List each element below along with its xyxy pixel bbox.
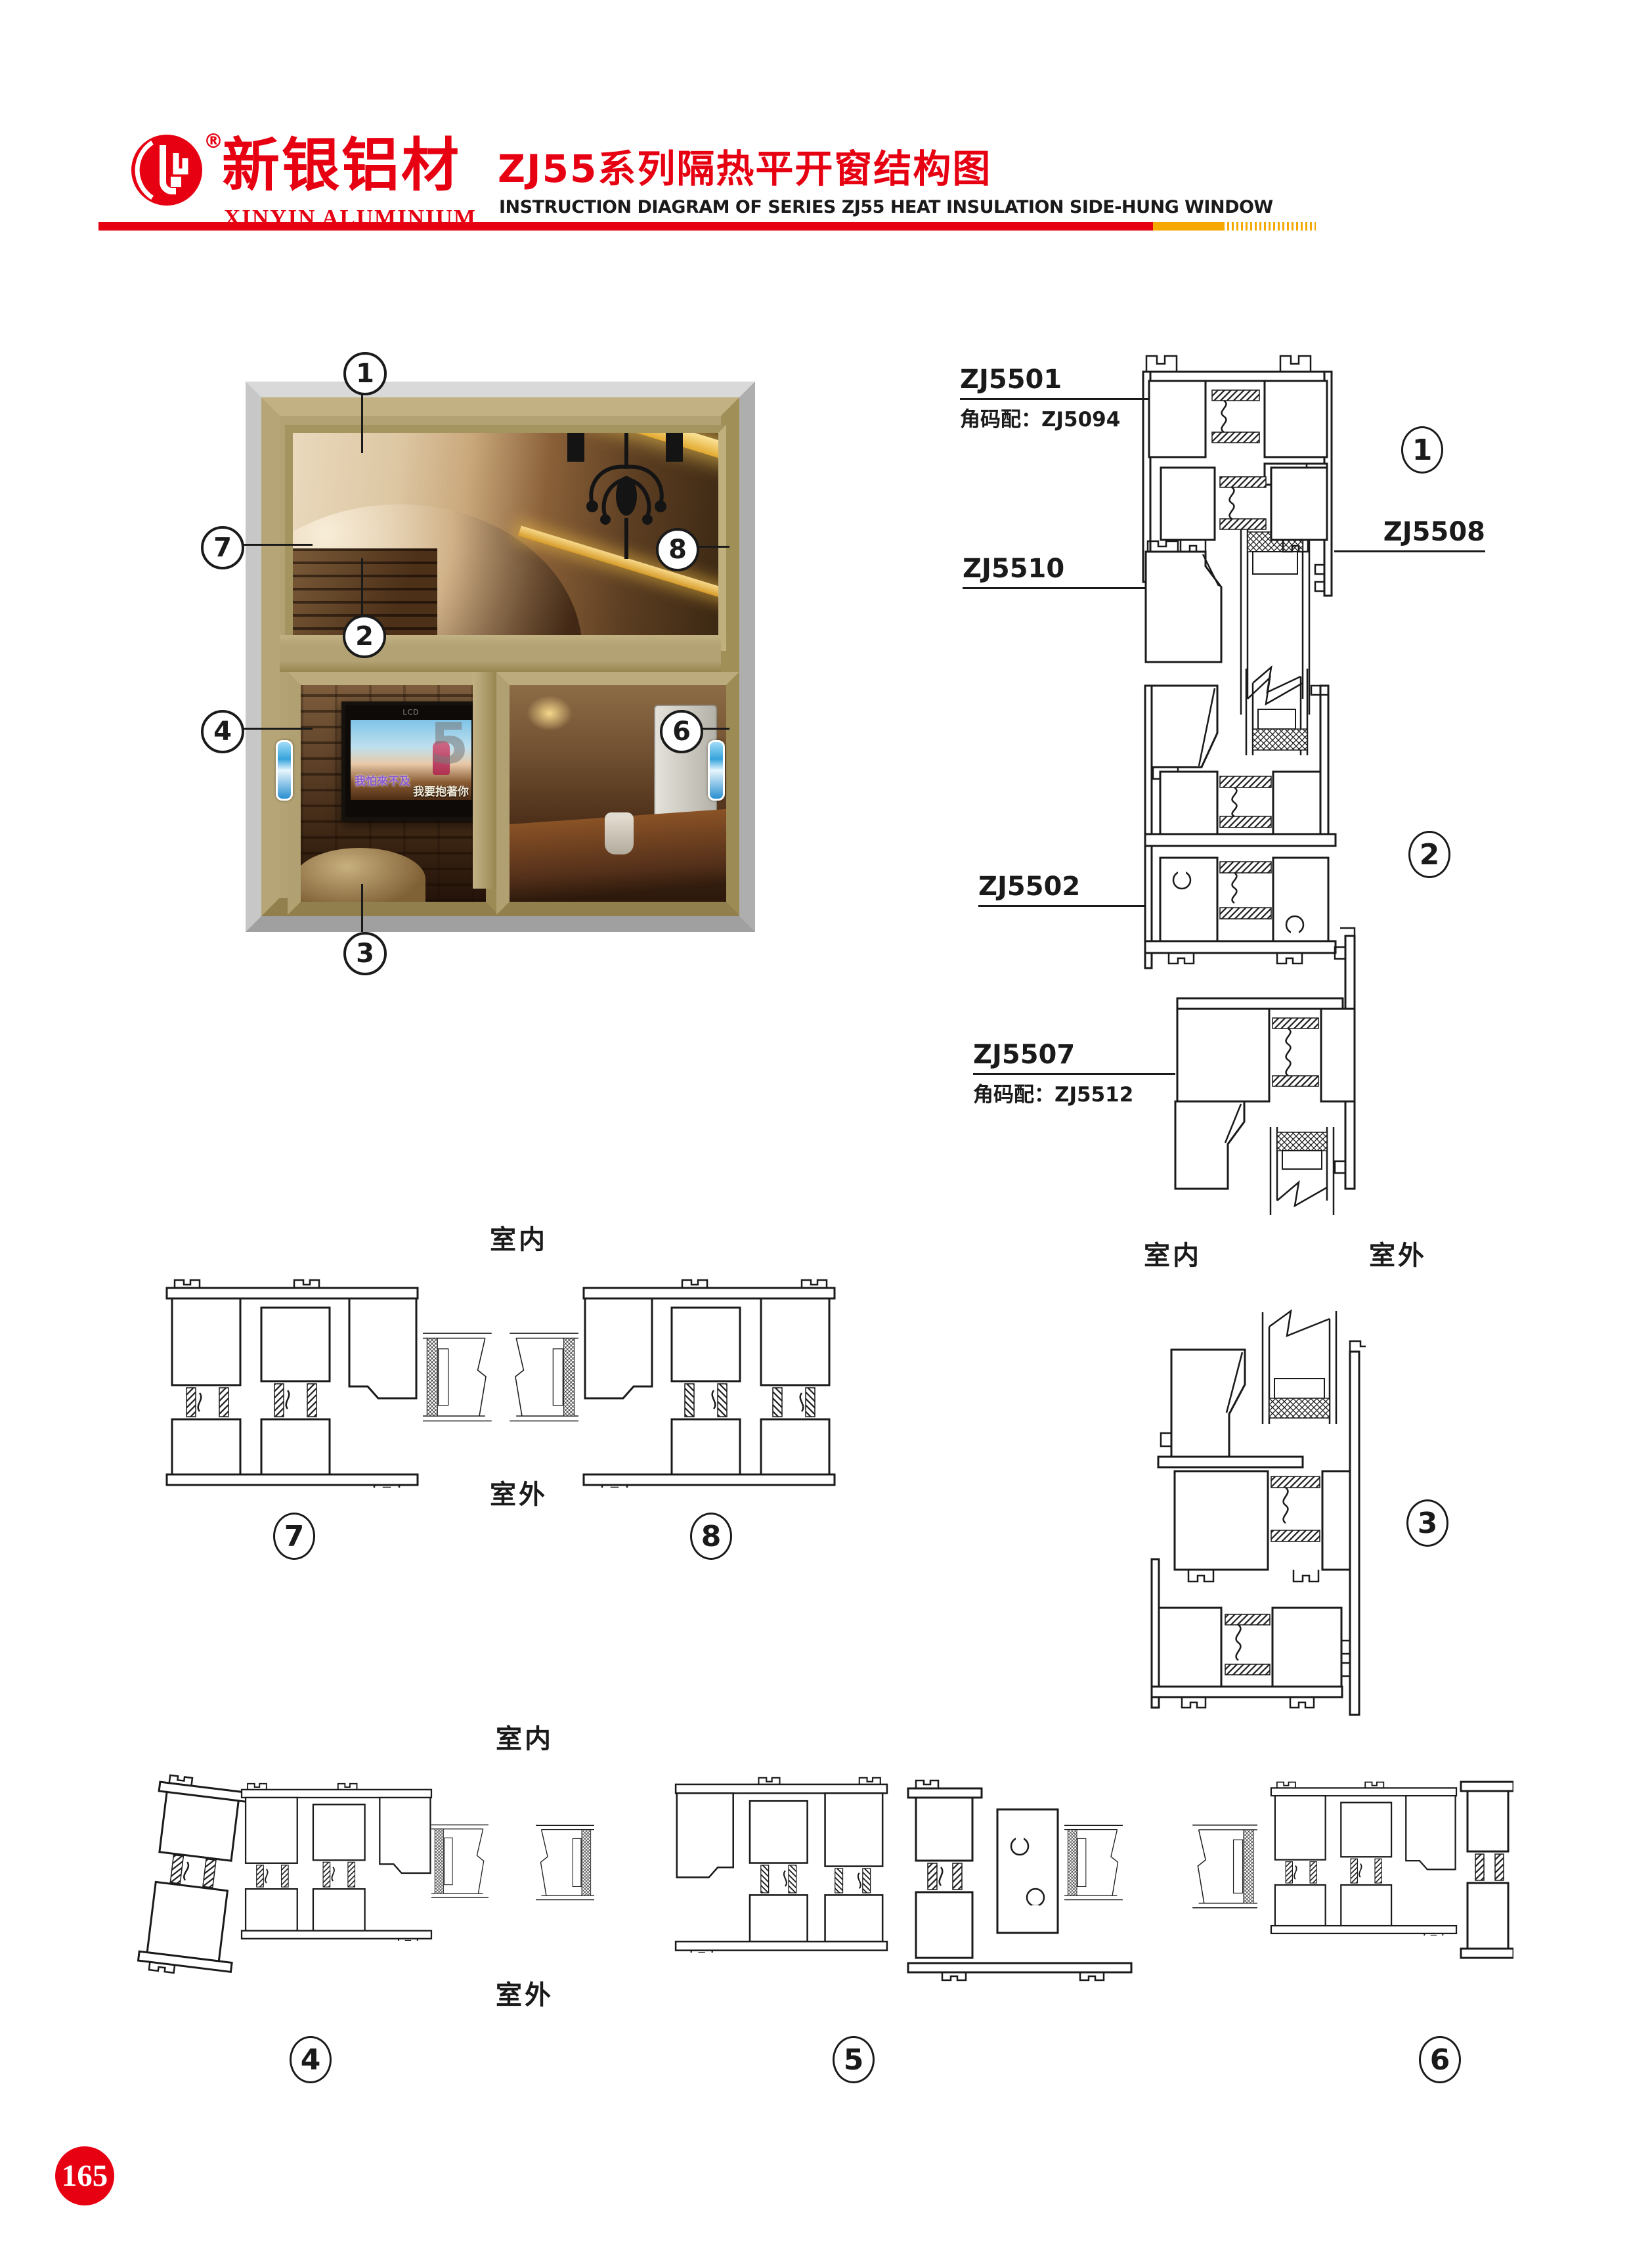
wall-sconce-glow (527, 696, 573, 731)
section-5-drawing (522, 1770, 1136, 1987)
catalog-page: ® 新银铝材 XINYIN ALUMINIUM ZJ55系列隔热平开窗结构图 I… (0, 0, 1652, 2258)
leader-line-8 (694, 546, 729, 548)
scene-living-room: LCD 我怕來不及 我要抱著你 5 (301, 685, 486, 902)
label-zj5502: ZJ5502 (978, 874, 1145, 907)
label-indoor-bottom: 室内 (496, 1726, 554, 1752)
center-mullion (473, 672, 496, 889)
tv-caption-2: 我要抱著你 (413, 782, 469, 799)
label-zj5508: ZJ5508 (1334, 519, 1485, 552)
label-zj5501-corner: 角码配：ZJ5094 (960, 410, 1120, 430)
left-sash: LCD 我怕來不及 我要抱著你 5 (288, 672, 499, 915)
leader-line-3 (361, 884, 363, 932)
section-7-number: 7 (273, 1513, 315, 1560)
logo-text-cn: 新银铝材 (222, 137, 461, 194)
vase (605, 812, 634, 854)
tv-caption-1: 我怕來不及 (355, 772, 410, 788)
window-handle-left (276, 740, 293, 801)
callout-1: 1 (343, 352, 387, 395)
window-aluminium-frame: LCD 我怕來不及 我要抱著你 5 (261, 397, 739, 916)
page-number-badge: 165 (55, 2146, 114, 2205)
leader-line-7 (239, 544, 313, 546)
callout-4: 4 (201, 710, 244, 753)
label-outdoor-right: 室外 (1369, 1243, 1427, 1269)
callout-8: 8 (656, 528, 699, 571)
right-sash (496, 672, 739, 915)
label-zj5501: ZJ5501 (960, 366, 1149, 400)
page-subtitle: INSTRUCTION DIAGRAM OF SERIES ZJ55 HEAT … (499, 198, 1273, 216)
header-rule-red (98, 222, 1153, 231)
label-outdoor-bottom: 室外 (496, 1982, 554, 2008)
label-zj5507-corner: 角码配：ZJ5512 (973, 1085, 1133, 1105)
section-2-number: 2 (1408, 831, 1450, 878)
section-6-number: 6 (1419, 2036, 1461, 2083)
callout-6: 6 (660, 710, 703, 753)
section-5-number: 5 (833, 2036, 875, 2083)
section-2-drawing (1142, 663, 1366, 1218)
registered-mark: ® (204, 130, 223, 153)
callout-7: 7 (201, 526, 244, 569)
header-rule-yellow (1153, 222, 1223, 231)
leader-line-1 (361, 391, 363, 453)
tv-brand: LCD (402, 708, 419, 717)
xinyin-logo-icon (130, 133, 204, 207)
callout-5-watermark: 5 (429, 711, 469, 777)
label-zj5507: ZJ5507 (973, 1042, 1175, 1075)
section-4-drawing (135, 1770, 489, 1987)
label-indoor-right: 室内 (1144, 1243, 1202, 1269)
callout-2: 2 (343, 615, 386, 658)
section-6-drawing (1179, 1770, 1513, 1987)
section-3-drawing (1142, 1307, 1366, 1727)
section-8-number: 8 (690, 1513, 732, 1560)
scene-ceiling (293, 433, 718, 643)
window-illustration: LCD 我怕來不及 我要抱著你 5 (246, 382, 755, 932)
page-title: ZJ55系列隔热平开窗结构图 (498, 150, 991, 188)
window-handle-right (708, 740, 725, 801)
label-outdoor-mid: 室外 (490, 1482, 548, 1508)
section-7-drawing (164, 1271, 492, 1491)
callout-3: 3 (343, 932, 387, 975)
leader-line-2 (361, 558, 363, 615)
leader-line-4 (239, 728, 313, 730)
section-3-number: 3 (1406, 1499, 1448, 1547)
label-zj5510: ZJ5510 (963, 556, 1146, 589)
section-4-number: 4 (290, 2036, 332, 2083)
header-rule-stripes (1223, 222, 1316, 231)
label-indoor-mid: 室内 (490, 1227, 548, 1253)
section-1-number: 1 (1401, 426, 1443, 474)
section-8-drawing (506, 1271, 837, 1491)
